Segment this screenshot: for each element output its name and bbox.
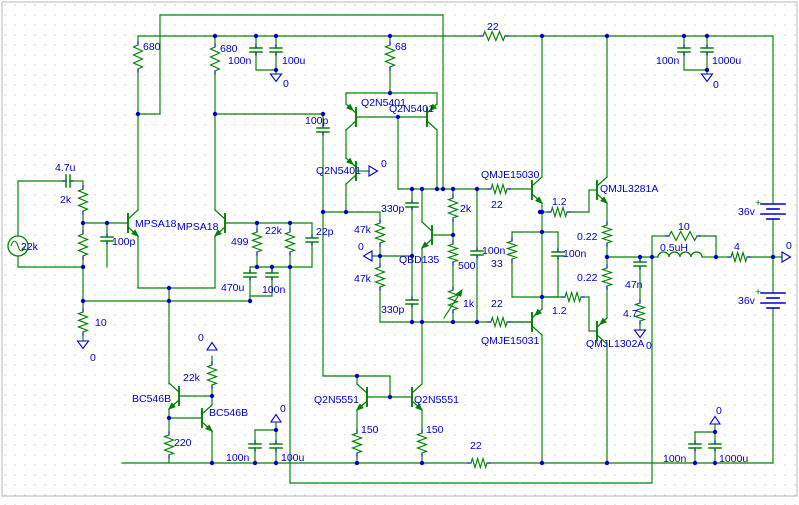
junction-dot xyxy=(248,299,252,303)
label-c330p_a[interactable]: 330p xyxy=(381,203,405,215)
label-c100u_tl[interactable]: 100u xyxy=(282,55,306,67)
label-r1_2b[interactable]: 1.2 xyxy=(552,305,567,317)
label-r2k_b[interactable]: 2k xyxy=(460,203,472,215)
junction-dot xyxy=(451,233,455,237)
junction-dot xyxy=(388,91,392,95)
label-flag_47k[interactable]: 0 xyxy=(358,241,364,253)
label-gnd_tl[interactable]: 0 xyxy=(283,78,289,90)
label-c1000u_tr[interactable]: 1000u xyxy=(712,55,741,67)
label-c100n_tr[interactable]: 100n xyxy=(656,55,680,67)
junction-dot xyxy=(435,187,439,191)
junction-dot xyxy=(451,187,455,191)
junction-dot xyxy=(540,210,544,214)
label-gnd_tr[interactable]: 0 xyxy=(713,79,719,91)
label-bc546bb[interactable]: BC546B xyxy=(209,407,248,419)
junction-dot xyxy=(255,221,259,225)
junction-dot xyxy=(605,34,609,38)
label-c100n_bl[interactable]: 100n xyxy=(226,452,250,464)
junction-dot xyxy=(167,286,171,290)
label-c100n_br[interactable]: 100n xyxy=(663,453,687,465)
label-flag_br[interactable]: 0 xyxy=(716,405,722,417)
junction-dot xyxy=(605,255,609,259)
junction-dot xyxy=(475,187,479,191)
label-qmje15030[interactable]: QMJE15030 xyxy=(481,169,540,181)
label-r22_d1[interactable]: 22 xyxy=(491,199,503,211)
label-c100n_bias[interactable]: 100n xyxy=(482,245,506,257)
label-r22k_in[interactable]: 22k xyxy=(21,241,39,253)
junction-dot xyxy=(105,221,109,225)
label-qbd135[interactable]: QBD135 xyxy=(399,254,439,266)
junction-dot xyxy=(771,255,775,259)
junction-dot xyxy=(475,320,479,324)
label-c1000u_br[interactable]: 1000u xyxy=(719,453,748,465)
label-r10_out[interactable]: 10 xyxy=(678,221,690,233)
junction-dot xyxy=(540,230,544,234)
label-r220[interactable]: 220 xyxy=(174,437,192,449)
label-r22_d2[interactable]: 22 xyxy=(491,298,503,310)
junction-dot xyxy=(210,461,214,465)
label-r68[interactable]: 68 xyxy=(395,41,407,53)
junction-dot xyxy=(344,210,348,214)
junction-dot xyxy=(378,254,382,258)
junction-dot xyxy=(693,461,697,465)
label-l0_5[interactable]: 0.5uH xyxy=(660,242,688,254)
label-q5401b[interactable]: Q2N5401 xyxy=(389,103,434,115)
junction-dot xyxy=(213,112,217,116)
label-r47k_a[interactable]: 47k xyxy=(354,224,372,236)
label-r22_rail2[interactable]: 22 xyxy=(470,440,482,452)
junction-dot xyxy=(274,68,278,72)
junction-dot xyxy=(396,115,400,119)
label-flag_cs[interactable]: 0 xyxy=(198,332,204,344)
label-r33[interactable]: 33 xyxy=(491,258,503,270)
junction-dot xyxy=(321,210,325,214)
label-r680a[interactable]: 680 xyxy=(143,41,161,53)
label-r150a[interactable]: 150 xyxy=(361,424,379,436)
junction-dot xyxy=(410,187,414,191)
junction-dot xyxy=(388,395,392,399)
label-flag_out[interactable]: 0 xyxy=(786,240,792,252)
label-r22k_cs[interactable]: 22k xyxy=(183,372,201,384)
label-mpsa18b[interactable]: MPSA18 xyxy=(177,221,219,233)
label-c4u7[interactable]: 4.7u xyxy=(55,162,76,174)
label-bc546ba[interactable]: BC546B xyxy=(132,393,171,405)
junction-dot xyxy=(650,255,654,259)
junction-dot xyxy=(420,461,424,465)
label-r1_2a[interactable]: 1.2 xyxy=(552,196,567,208)
junction-dot xyxy=(274,428,278,432)
junction-dot xyxy=(451,320,455,324)
junction-dot xyxy=(254,34,258,38)
schematic-canvas[interactable]: 680680100n100u06822100n1000u0Q2N5401Q2N5… xyxy=(0,0,799,505)
label-v36b[interactable]: 36v xyxy=(738,295,756,307)
junction-dot xyxy=(81,299,85,303)
junction-dot xyxy=(136,112,140,116)
label-r4_7[interactable]: 4.7 xyxy=(623,308,638,320)
label-qmjl3281a[interactable]: QMJL3281A xyxy=(600,183,658,195)
junction-dot xyxy=(355,461,359,465)
junction-dot xyxy=(355,374,359,378)
junction-dot xyxy=(213,34,217,38)
label-r2k_in[interactable]: 2k xyxy=(60,194,72,206)
label-gnd_in[interactable]: 0 xyxy=(90,352,96,364)
label-r500[interactable]: 500 xyxy=(458,260,476,272)
label-q5551b[interactable]: Q2N5551 xyxy=(414,394,459,406)
schematic-svg[interactable]: 680680100n100u06822100n1000u0Q2N5401Q2N5… xyxy=(0,0,799,505)
label-v36a[interactable]: 36v xyxy=(738,206,756,218)
junction-dot xyxy=(540,461,544,465)
label-r4[interactable]: 4 xyxy=(734,241,740,253)
junction-dot xyxy=(705,68,709,72)
label-r47k_b[interactable]: 47k xyxy=(354,273,372,285)
label-c100p_vas[interactable]: 100p xyxy=(305,115,329,127)
label-c330p_b[interactable]: 330p xyxy=(381,304,405,316)
junction-dot xyxy=(210,394,214,398)
label-flag_bl[interactable]: 0 xyxy=(280,403,286,415)
label-gnd_out[interactable]: 0 xyxy=(646,340,652,352)
label-vplus_b[interactable]: + xyxy=(755,286,761,298)
junction-dot xyxy=(713,430,717,434)
label-c100n_tl[interactable]: 100n xyxy=(228,55,252,67)
label-qmjl1302a[interactable]: QMJL1302A xyxy=(586,338,644,350)
label-mpsa18a[interactable]: MPSA18 xyxy=(135,218,177,230)
junction-dot xyxy=(288,221,292,225)
junction-dot xyxy=(270,265,274,269)
junction-dot xyxy=(713,461,717,465)
label-c47n[interactable]: 47n xyxy=(625,279,643,291)
junction-dot xyxy=(388,34,392,38)
label-r22k_fb[interactable]: 22k xyxy=(265,225,283,237)
label-qmje15031[interactable]: QMJE15031 xyxy=(481,335,540,347)
label-vplus_a[interactable]: + xyxy=(755,197,761,209)
label-r1k[interactable]: 1k xyxy=(463,298,475,310)
label-c100n_fb[interactable]: 100n xyxy=(262,284,286,296)
junction-dot xyxy=(81,265,85,269)
label-r680b[interactable]: 680 xyxy=(220,43,238,55)
junction-dot xyxy=(714,255,718,259)
junction-dot xyxy=(274,34,278,38)
junction-dot xyxy=(682,34,686,38)
junction-dot xyxy=(540,295,544,299)
label-c100p_in[interactable]: 100p xyxy=(112,236,136,248)
label-q5401c[interactable]: Q2N5401 xyxy=(316,165,361,177)
junction-dot xyxy=(420,187,424,191)
label-r499[interactable]: 499 xyxy=(231,236,249,248)
junction-dot xyxy=(255,265,259,269)
junction-dot xyxy=(167,299,171,303)
junction-dot xyxy=(274,461,278,465)
label-r0_22a[interactable]: 0.22 xyxy=(577,231,598,243)
junction-dot xyxy=(441,187,445,191)
label-r22_rail[interactable]: 22 xyxy=(487,21,499,33)
junction-dot xyxy=(288,265,292,269)
junction-dot xyxy=(638,255,642,259)
label-flag_vas[interactable]: 0 xyxy=(381,158,387,170)
label-r150b[interactable]: 150 xyxy=(426,424,444,436)
label-c100u_bl[interactable]: 100u xyxy=(281,452,305,464)
junction-dot xyxy=(167,416,171,420)
label-c470u[interactable]: 470u xyxy=(221,282,245,294)
junction-dot xyxy=(705,34,709,38)
label-q5551a[interactable]: Q2N5551 xyxy=(314,394,359,406)
label-r0_22b[interactable]: 0.22 xyxy=(577,272,598,284)
junction-dot xyxy=(605,461,609,465)
label-r10_in[interactable]: 10 xyxy=(95,317,107,329)
junction-dot xyxy=(420,320,424,324)
junction-dot xyxy=(81,221,85,225)
junction-dot xyxy=(540,34,544,38)
label-c22p[interactable]: 22p xyxy=(316,226,334,238)
junction-dot xyxy=(410,320,414,324)
junction-dot xyxy=(253,461,257,465)
label-c100n_mid[interactable]: 100n xyxy=(563,248,587,260)
